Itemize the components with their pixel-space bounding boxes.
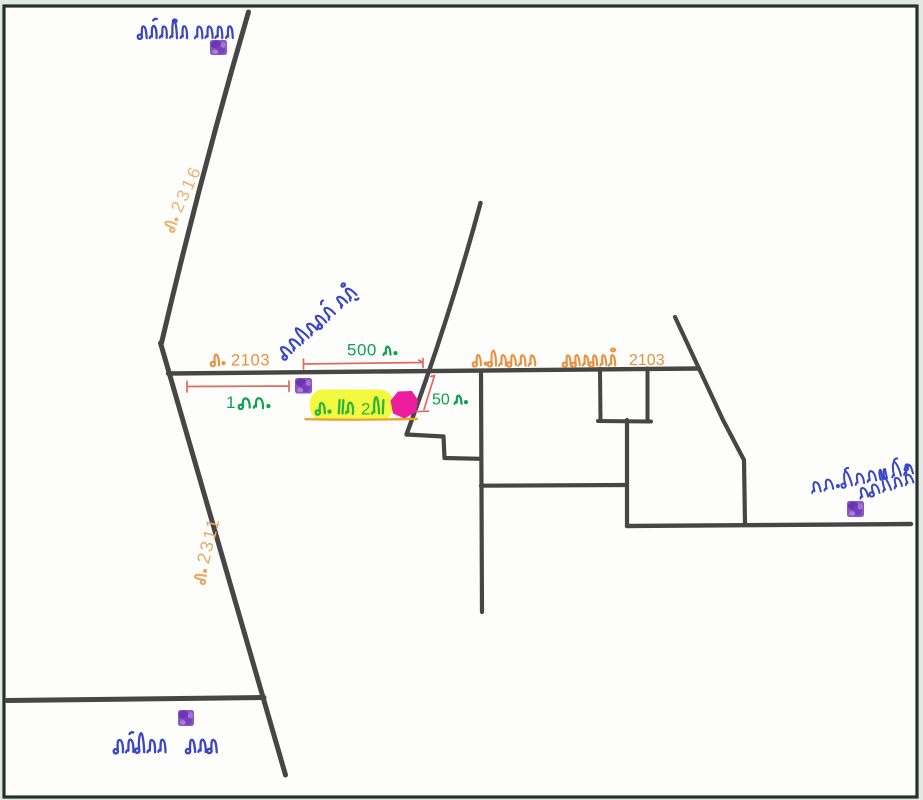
svg-text:50: 50 [432,392,450,409]
svg-text:2: 2 [361,400,370,419]
svg-text:500: 500 [347,341,377,360]
svg-text:2103: 2103 [231,352,270,370]
svg-text:2103: 2103 [629,352,665,369]
svg-text:1: 1 [226,393,235,412]
